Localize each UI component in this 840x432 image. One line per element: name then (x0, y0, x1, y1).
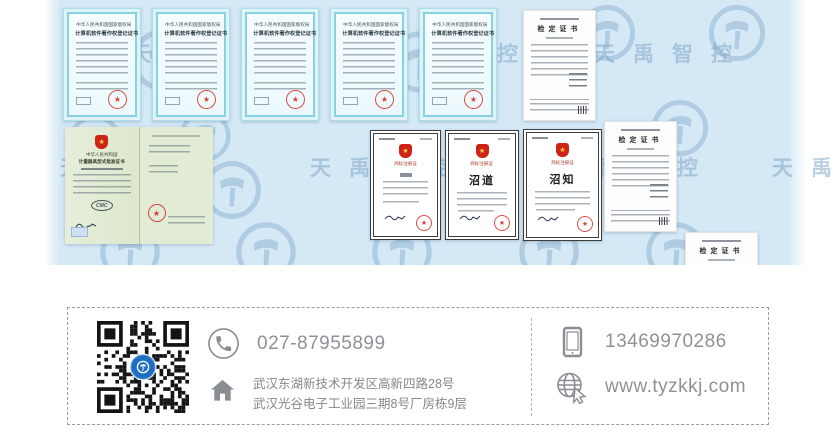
trademark-certificate: ★ 商标注册证 沼道 ★ (445, 130, 519, 240)
vertical-divider (531, 318, 532, 416)
software-copyright-certificate: 中华人民共和国国家版权局 计算机软件著作权登记证书 ★ (241, 8, 319, 121)
trademark-name: 沼知 (550, 171, 576, 187)
trademark-certificate: ★ 商标注册证 ★ (370, 130, 441, 240)
contact-footer: 027-87955899 武汉东湖新技术开发区高新四路28号 武汉光谷电子工业园… (67, 307, 769, 425)
certificate-title: 商标注册证 (394, 160, 417, 166)
software-copyright-certificate: 中华人民共和国国家版权局 计算机软件著作权登记证书 ★ (152, 8, 230, 121)
qr-code (97, 321, 189, 413)
address-row: 武汉东湖新技术开发区高新四路28号 武汉光谷电子工业园三期8号厂房栋9层 (209, 374, 467, 414)
mobile-row: 13469970286 (556, 325, 727, 359)
barcode-icon (659, 217, 668, 225)
certificate-country: 中华人民共和国 (75, 151, 129, 157)
red-seal-icon: ★ (286, 90, 305, 109)
mobile-number: 13469970286 (605, 331, 727, 353)
phone-number: 027-87955899 (257, 333, 386, 355)
phone-icon (207, 327, 240, 360)
page: 天禹智控天禹智控天禹智控天禹智控天禹智控天禹智控天禹智控 中华人民共和国国家版权… (0, 0, 840, 432)
website-url[interactable]: www.tyzkkj.com (605, 376, 746, 398)
phone-row: 027-87955899 (207, 327, 386, 360)
red-star-seal-icon: ★ (148, 204, 166, 222)
national-emblem-icon: ★ (95, 135, 108, 149)
certificate-authority: 中华人民共和国国家版权局 (76, 21, 128, 27)
address-line-2: 武汉光谷电子工业园三期8号厂房栋9层 (253, 394, 467, 414)
certificate-title: 计量器具型式批准证书 (74, 158, 129, 164)
verification-certificate: 检定证书 (523, 10, 596, 121)
address-text: 武汉东湖新技术开发区高新四路28号 武汉光谷电子工业园三期8号厂房栋9层 (253, 374, 467, 414)
trademark-certificate: ★ 商标注册证 沼知 ★ (523, 129, 602, 241)
red-seal-icon: ★ (494, 215, 510, 231)
watermark-logo-icon (231, 217, 301, 265)
verification-certificate: 检定证书 (604, 121, 677, 232)
software-copyright-certificate: 中华人民共和国国家版权局 计算机软件著作权登记证书 ★ (419, 8, 497, 121)
globe-icon (554, 370, 588, 404)
signature-scribble (459, 209, 483, 227)
software-copyright-certificate: 中华人民共和国国家版权局 计算机软件著作权登记证书 ★ (63, 8, 141, 121)
watermark-text: 天禹智控 (772, 152, 840, 182)
registration-stamp-box (76, 97, 91, 105)
home-icon (209, 377, 236, 404)
certificate-title: 检定证书 (530, 24, 589, 34)
red-seal-icon: ★ (197, 90, 216, 109)
watermark-text: 天禹智控 (594, 38, 750, 68)
software-copyright-certificate: 中华人民共和国国家版权局 计算机软件著作权登记证书 ★ (330, 8, 408, 121)
national-emblem-icon: ★ (556, 143, 569, 157)
national-emblem-icon: ★ (399, 144, 412, 158)
website-row: www.tyzkkj.com (554, 370, 746, 404)
smartphone-icon (556, 325, 588, 359)
company-logo-icon (130, 354, 157, 381)
watermark-logo-icon (704, 0, 770, 66)
trademark-name: 沼道 (469, 172, 495, 188)
red-seal-icon: ★ (416, 215, 432, 231)
national-emblem-icon: ★ (476, 144, 489, 158)
signature-scribble (537, 210, 561, 228)
certificate-title: 计算机软件著作权登记证书 (75, 29, 128, 37)
signature-scribble (384, 209, 408, 227)
verification-certificate: 检定证书 (685, 232, 758, 265)
cmc-mark: CMC (91, 200, 113, 211)
address-line-1: 武汉东湖新技术开发区高新四路28号 (253, 374, 467, 394)
pattern-approval-certificate: ★ 中华人民共和国 计量器具型式批准证书 CMC ★ (65, 127, 213, 244)
barcode-icon (578, 106, 587, 114)
red-seal-icon: ★ (577, 216, 593, 232)
certificates-banner: 天禹智控天禹智控天禹智控天禹智控天禹智控天禹智控天禹智控 中华人民共和国国家版权… (0, 0, 840, 265)
red-seal-icon: ★ (108, 90, 127, 109)
red-seal-icon: ★ (464, 90, 483, 109)
blue-tag (71, 227, 88, 237)
red-seal-icon: ★ (375, 90, 394, 109)
